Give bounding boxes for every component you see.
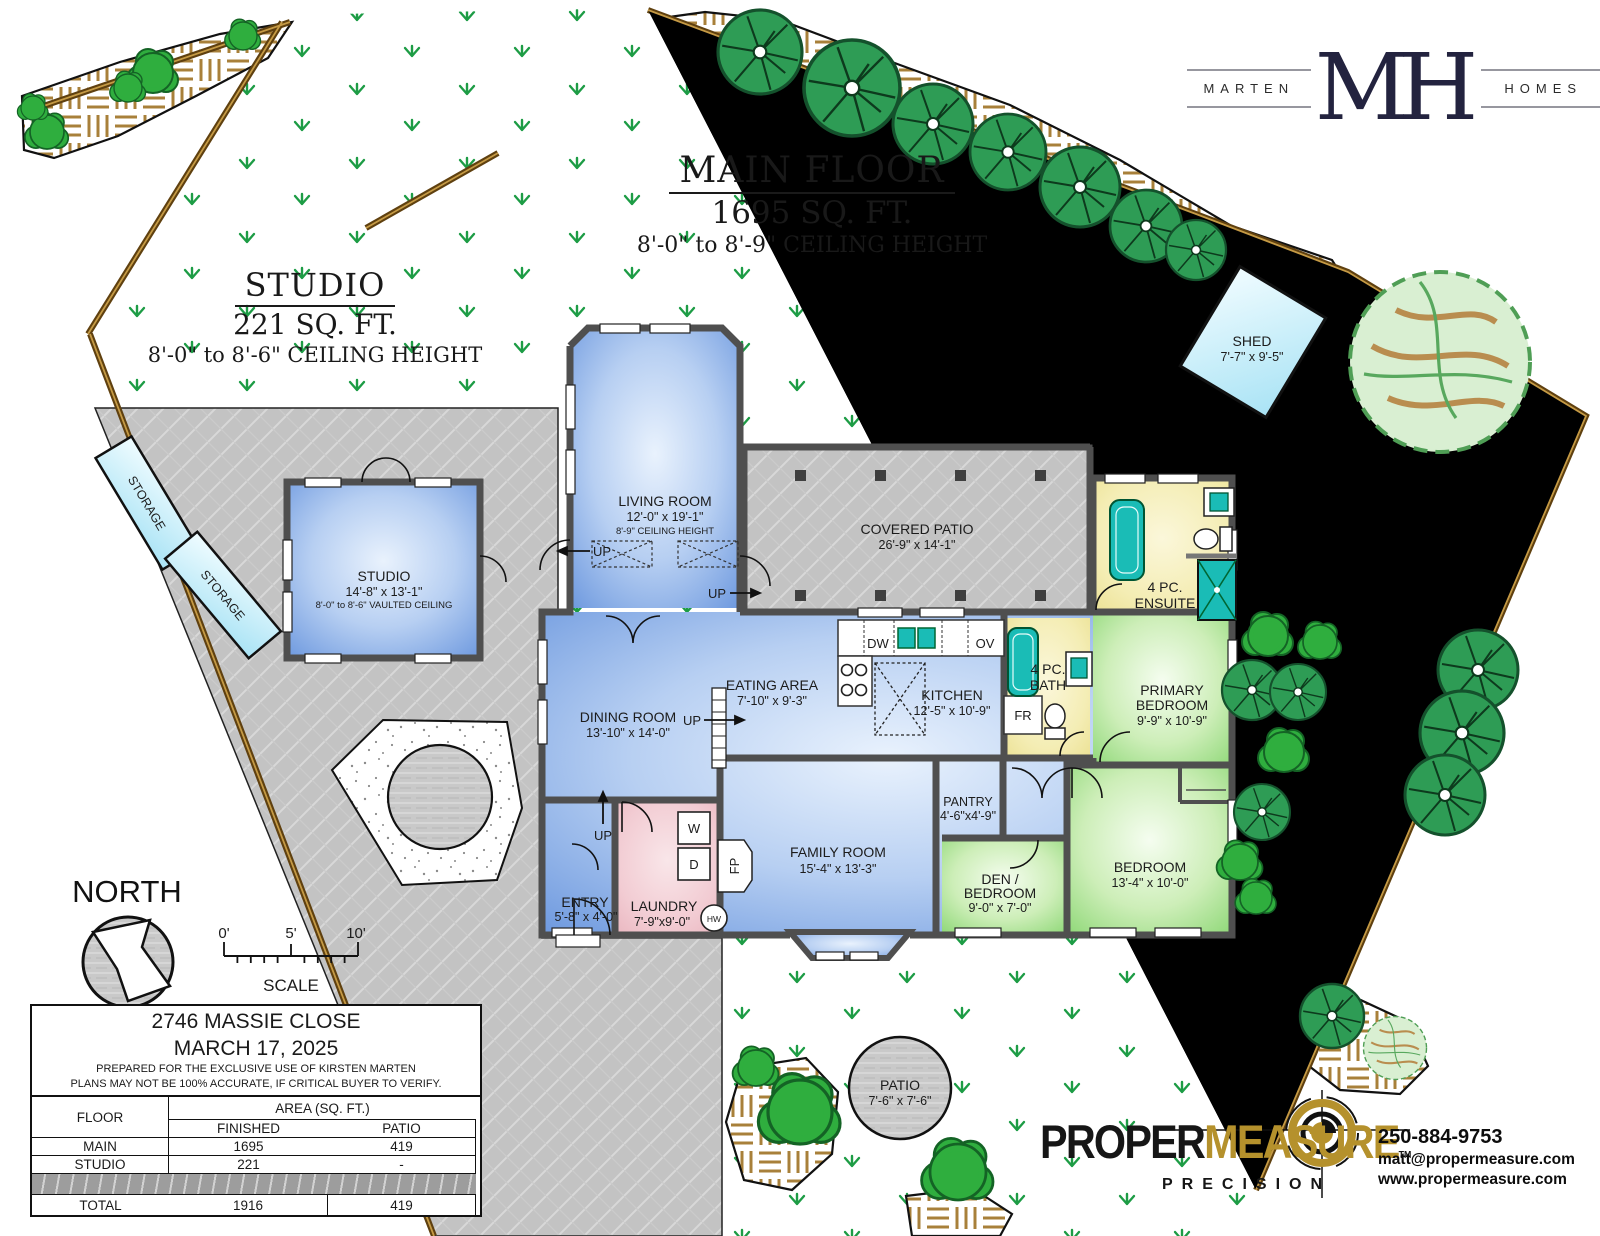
hw-label: HW [707,914,721,924]
scale-10: 10' [346,925,366,942]
total-patio: 419 [328,1195,476,1215]
north-label: NORTH [72,874,182,909]
col-patio: PATIO [328,1120,476,1138]
total-finished: 1916 [169,1195,328,1215]
pm-email: matt@propermeasure.com [1378,1150,1575,1170]
primary-line2: BEDROOM [1136,697,1208,713]
pm-word-proper: PROPER [1040,1115,1204,1168]
studio-dims: 14'-8" x 13'-1" [346,585,423,599]
oven-label: OV [976,636,995,651]
eating-dims: 7'-10" x 9'-3" [737,694,807,708]
row-main-finished: 1695 [169,1138,328,1156]
studio-note: 8'-0" to 8'-6" VAULTED CEILING [316,600,453,611]
washer-label: W [688,821,701,836]
area-grid: FLOOR AREA (SQ. FT.) FINISHED PATIO MAIN… [32,1095,480,1215]
kitchen-dims: 12'-5" x 10'-9" [914,704,991,718]
eating-name: EATING AREA [726,677,819,693]
pantry-dims: 4'-6"x4'-9" [940,809,996,823]
col-finished: FINISHED [169,1120,328,1138]
scale-5: 5' [285,925,296,942]
brand-monogram: MH [1311,44,1481,131]
total-label: TOTAL [32,1195,169,1215]
main-floor-title-block: MAIN FLOOR 1695 SQ. FT. 8'-0" to 8'-9" C… [612,150,1012,258]
ensuite-tub [1110,500,1144,580]
row-studio-floor: STUDIO [32,1156,169,1174]
primary-line1: PRIMARY [1140,682,1204,698]
dryer-label: D [689,857,698,872]
patio-name: PATIO [880,1077,920,1093]
main-floor-area: 1695 SQ. FT. [612,195,1012,231]
pm-precision: PRECISION [1162,1176,1331,1194]
row-main-patio: 419 [328,1138,476,1156]
den-line2: BEDROOM [964,885,1036,901]
scale-0: 0' [218,925,229,942]
stairs [712,688,726,768]
pm-website: www.propermeasure.com [1378,1170,1575,1190]
ensuite-line1: 4 PC. [1147,579,1182,595]
brand-right-text: HOMES [1481,69,1600,108]
pm-word-measure: MEASURE [1204,1115,1399,1168]
pm-phone: 250-884-9753 [1378,1124,1575,1150]
scale-label: SCALE [263,976,319,995]
kitchen-sink [898,628,915,648]
bath-line1: 4 PC. [1030,661,1065,677]
primary-dims: 9'-9" x 10'-9" [1137,714,1207,728]
fp-label: FP [727,858,742,875]
up-label-4: UP [594,828,612,843]
propermeasure-wordmark: PROPERMEASURETM [1040,1114,1411,1169]
col-floor: FLOOR [32,1097,169,1138]
floorplan-page: STORAGE STORAGE [0,0,1600,1236]
studio-title: STUDIO [115,266,515,304]
kitchen-name: KITCHEN [921,687,982,703]
living-room-note: 8'-9" CEILING HEIGHT [616,526,714,537]
covered-patio-dims: 26'-9" x 14'-1" [879,538,956,552]
ensuite-line2: ENSUITE [1135,595,1196,611]
dishwasher-label: DW [867,636,889,651]
laundry-name: LAUNDRY [631,898,698,914]
fridge-label: FR [1014,708,1031,723]
studio-area-text: 221 SQ. FT. [115,308,515,341]
info-table: 2746 MASSIE CLOSE MARCH 17, 2025 PREPARE… [30,1004,482,1217]
dining-name: DINING ROOM [580,709,676,725]
up-label-3: UP [683,713,701,728]
main-floor-ceiling: 8'-0" to 8'-9" CEILING HEIGHT [612,233,1012,258]
stove [838,656,872,706]
separator-row [32,1174,476,1195]
shed-name: SHED [1233,333,1272,349]
toilet [1045,704,1065,728]
den-dims: 9'-0" x 7'-0" [969,901,1032,915]
living-room-dims: 12'-0" x 19'-1" [627,510,704,524]
studio-title-block: STUDIO 221 SQ. FT. 8'-0" to 8'-6" CEILIN… [115,266,515,367]
studio-ceiling: 8'-0" to 8'-6" CEILING HEIGHT [115,343,515,367]
pm-contact-block: 250-884-9753 matt@propermeasure.com www.… [1378,1124,1575,1190]
bedroom-dims: 13'-4" x 10'-0" [1112,876,1189,890]
disclaimer-note: PLANS MAY NOT BE 100% ACCURATE, IF CRITI… [32,1077,480,1092]
main-floor-title: MAIN FLOOR [612,150,1012,191]
patio-dims: 7'-6" x 7'-6" [869,1094,932,1108]
studio-name: STUDIO [358,568,411,584]
shed-dims: 7'-7" x 9'-5" [1221,350,1284,364]
address: 2746 MASSIE CLOSE [32,1008,480,1035]
row-main-floor: MAIN [32,1138,169,1156]
marten-homes-logo: MARTEN MH HOMES [1192,30,1600,146]
row-studio-finished: 221 [169,1156,328,1174]
row-studio-patio: - [328,1156,476,1174]
covered-patio-name: COVERED PATIO [860,521,973,537]
brand-left-text: MARTEN [1187,69,1311,108]
up-label-2: UP [708,586,726,601]
col-area: AREA (SQ. FT.) [169,1097,476,1120]
ensuite-toilet [1194,529,1218,549]
laundry-dims: 7'-9"x9'-0" [634,915,690,929]
bath-line2: BATH [1030,677,1066,693]
family-name: FAMILY ROOM [790,844,886,860]
plan-date: MARCH 17, 2025 [32,1035,480,1062]
bedroom-name: BEDROOM [1114,859,1186,875]
living-room-name: LIVING ROOM [618,493,711,509]
entry-name: ENTRY [561,894,609,910]
dining-dims: 13'-10" x 14'-0" [586,726,670,740]
family-dims: 15'-4" x 13'-3" [800,862,877,876]
info-table-header: 2746 MASSIE CLOSE MARCH 17, 2025 PREPARE… [32,1006,480,1095]
up-label-1: UP [593,544,611,559]
prepared-for-note: PREPARED FOR THE EXCLUSIVE USE OF KIRSTE… [32,1062,480,1077]
entry-dims: 5'-8" x 4'-0" [555,910,618,924]
pantry-name: PANTRY [943,795,993,809]
